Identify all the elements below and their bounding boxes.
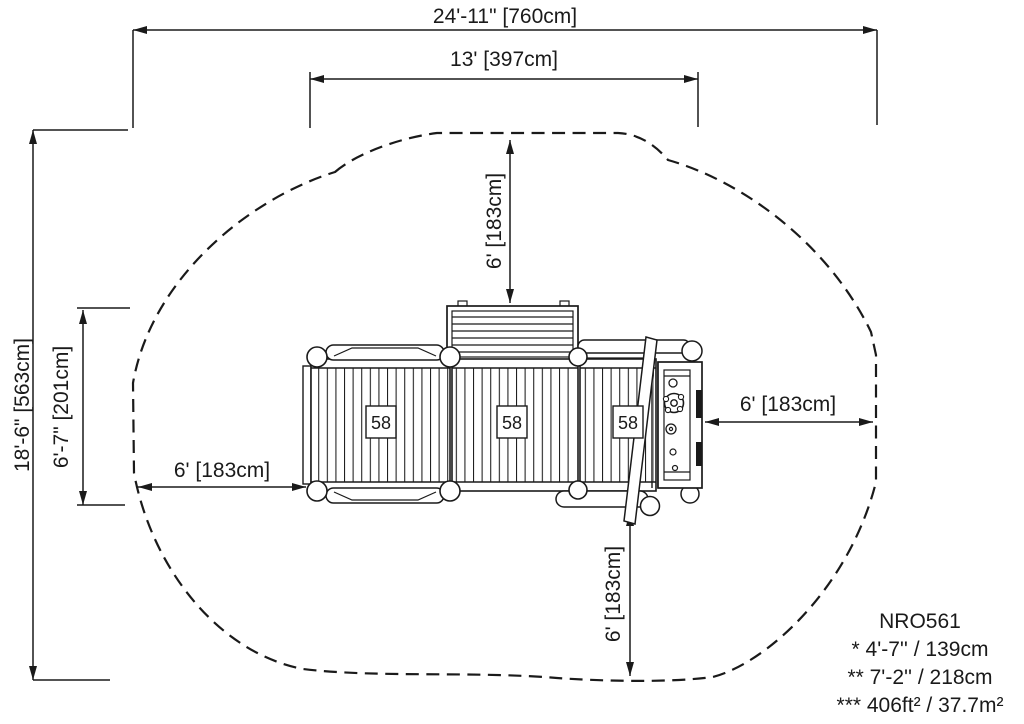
- dimension-inner-depth: 6'-7" [201cm]: [50, 308, 130, 505]
- panel-hold: [669, 379, 677, 387]
- deck-tag-label: 58: [502, 413, 522, 433]
- deck-left-bumper-bottom: [326, 488, 444, 503]
- title-block: NRO561 * 4'-7'' / 139cm ** 7'-2'' / 218c…: [837, 610, 1004, 717]
- post: [307, 481, 327, 501]
- dimension-clearance-left: 6' [183cm]: [138, 459, 306, 487]
- panel-hold: [669, 427, 672, 430]
- deck-tag-label: 58: [371, 413, 391, 433]
- extension-line: [33, 130, 128, 680]
- steering-wheel-icon: [663, 394, 683, 413]
- note-line-3: *** 406ft² / 37.7m²: [837, 694, 1004, 717]
- post: [569, 348, 587, 366]
- dimension-clearance-bottom: 6' [183cm]: [602, 512, 630, 676]
- post: [569, 481, 587, 499]
- panel-grip: [696, 390, 702, 418]
- post: [440, 347, 460, 367]
- note-line-2: ** 7'-2'' / 218cm: [847, 666, 992, 689]
- deck-tag-middle: 58: [497, 406, 527, 438]
- dim-label-clearance-top: 6' [183cm]: [483, 173, 506, 269]
- deck-tag-right: 58: [613, 406, 643, 438]
- drawing-canvas: 24'-11" [760cm] 13' [397cm] 18'-6" [563c…: [0, 0, 1024, 724]
- post: [440, 481, 460, 501]
- product-code: NRO561: [879, 610, 961, 633]
- dimension-clearance-top: 6' [183cm]: [483, 140, 510, 303]
- note-line-1: * 4'-7'' / 139cm: [852, 638, 989, 661]
- deck-tag-left: 58: [366, 406, 396, 438]
- climbing-panel: [652, 362, 702, 488]
- dim-label-clearance-right: 6' [183cm]: [740, 393, 836, 416]
- dim-label-clearance-bottom: 6' [183cm]: [602, 546, 625, 642]
- technical-drawing-svg: 24'-11" [760cm] 13' [397cm] 18'-6" [563c…: [0, 0, 1024, 724]
- dim-label-inner-width: 13' [397cm]: [450, 48, 558, 71]
- top-rail: [578, 340, 702, 361]
- panel-grip: [696, 442, 702, 466]
- dimension-clearance-right: 6' [183cm]: [705, 393, 873, 422]
- extension-line: [77, 308, 130, 505]
- dim-label-overall-depth: 18'-6" [563cm]: [11, 338, 34, 472]
- deck-left-bumper-top: [326, 345, 444, 360]
- dim-label-overall-width: 24'-11" [760cm]: [433, 5, 577, 28]
- panel-hold: [670, 449, 676, 455]
- dim-label-inner-depth: 6'-7" [201cm]: [50, 346, 73, 468]
- deck-left-rail: [303, 366, 311, 484]
- dim-label-clearance-left: 6' [183cm]: [174, 459, 270, 482]
- extension-line: [310, 72, 698, 128]
- stairs: [447, 301, 578, 362]
- post: [307, 347, 327, 367]
- play-structure: 58 58 58: [303, 301, 702, 524]
- deck-tag-label: 58: [618, 413, 638, 433]
- dimension-inner-width: 13' [397cm]: [310, 48, 698, 128]
- panel-hold: [673, 466, 678, 471]
